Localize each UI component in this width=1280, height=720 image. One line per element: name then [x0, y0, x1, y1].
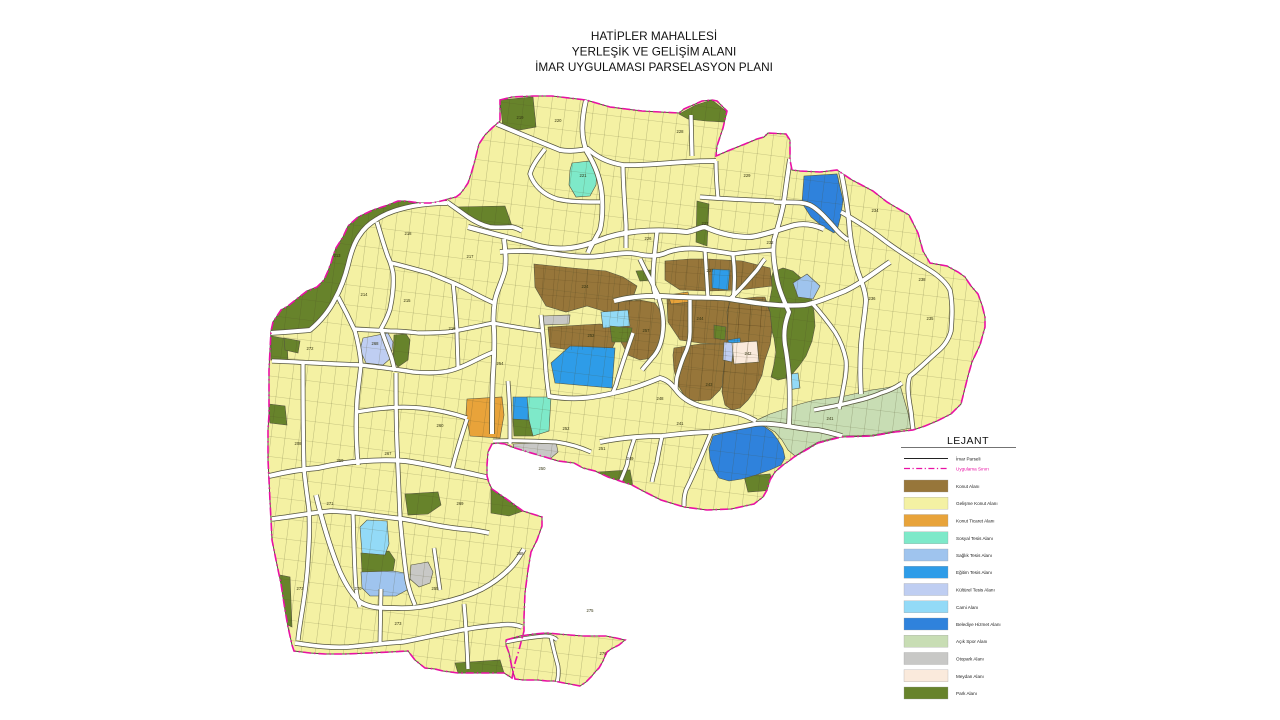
svg-text:276: 276 [600, 651, 608, 656]
svg-text:221: 221 [580, 173, 588, 178]
svg-text:LEJANT: LEJANT [947, 435, 989, 447]
svg-text:Uygulama Sınırı: Uygulama Sınırı [956, 467, 989, 472]
svg-text:249: 249 [627, 456, 635, 461]
svg-text:252: 252 [563, 426, 571, 431]
svg-text:250: 250 [539, 466, 547, 471]
svg-text:Park Alanı: Park Alanı [956, 691, 977, 696]
svg-text:Kültürel Tesis Alanı: Kültürel Tesis Alanı [956, 588, 995, 593]
svg-text:241: 241 [827, 416, 835, 421]
svg-text:273: 273 [395, 621, 403, 626]
svg-text:YERLEŞİK VE GELİŞİM ALANI: YERLEŞİK VE GELİŞİM ALANI [572, 45, 737, 59]
svg-text:217: 217 [467, 254, 475, 259]
svg-text:248: 248 [657, 396, 665, 401]
svg-text:213: 213 [334, 253, 342, 258]
svg-text:227: 227 [702, 221, 710, 226]
svg-text:Konut Ticaret Alanı: Konut Ticaret Alanı [956, 519, 995, 524]
svg-text:242: 242 [745, 351, 753, 356]
svg-text:271: 271 [327, 501, 335, 506]
svg-text:Konut Alanı: Konut Alanı [956, 484, 980, 489]
svg-text:229: 229 [744, 173, 752, 178]
svg-text:Cami Alanı: Cami Alanı [956, 605, 978, 610]
svg-text:244: 244 [697, 316, 705, 321]
svg-text:241: 241 [677, 421, 685, 426]
svg-text:257: 257 [643, 328, 651, 333]
svg-text:İmar Parseli: İmar Parseli [956, 456, 981, 462]
svg-text:Eğitim Tesis Alanı: Eğitim Tesis Alanı [956, 570, 992, 575]
svg-text:267: 267 [385, 451, 393, 456]
svg-text:HATİPLER MAHALLESİ: HATİPLER MAHALLESİ [591, 29, 717, 43]
svg-text:238: 238 [919, 277, 927, 282]
svg-text:269: 269 [457, 501, 465, 506]
svg-text:208: 208 [295, 441, 303, 446]
svg-text:Gelişme Konut Alanı: Gelişme Konut Alanı [956, 501, 998, 506]
svg-text:234: 234 [872, 208, 880, 213]
svg-text:Belediye Hizmet Alanı: Belediye Hizmet Alanı [956, 622, 1001, 627]
svg-text:254: 254 [497, 361, 505, 366]
svg-text:Açık Spor Alanı: Açık Spor Alanı [956, 639, 987, 644]
svg-text:Sosyal Tesis Alanı: Sosyal Tesis Alanı [956, 536, 993, 541]
svg-text:252: 252 [588, 333, 596, 338]
svg-text:237: 237 [707, 268, 715, 273]
svg-text:224: 224 [582, 284, 590, 289]
svg-text:243: 243 [706, 382, 714, 387]
svg-text:218: 218 [405, 231, 413, 236]
svg-text:275: 275 [587, 608, 595, 613]
svg-text:219: 219 [517, 115, 525, 120]
svg-text:273: 273 [297, 586, 305, 591]
svg-text:214: 214 [361, 292, 369, 297]
svg-text:Sağlık Tesis Alanı: Sağlık Tesis Alanı [956, 553, 992, 558]
svg-text:251: 251 [599, 446, 607, 451]
svg-text:216: 216 [449, 326, 457, 331]
svg-text:260: 260 [437, 423, 445, 428]
svg-text:228: 228 [677, 129, 685, 134]
svg-text:259: 259 [337, 458, 345, 463]
svg-text:272: 272 [307, 346, 315, 351]
svg-text:236: 236 [869, 296, 877, 301]
svg-text:İMAR UYGULAMASI PARSELASYON PL: İMAR UYGULAMASI PARSELASYON PLANI [535, 60, 773, 74]
svg-text:235: 235 [927, 316, 935, 321]
svg-text:220: 220 [555, 118, 563, 123]
svg-text:268: 268 [372, 341, 380, 346]
svg-text:268: 268 [517, 551, 525, 556]
svg-text:232: 232 [767, 240, 775, 245]
svg-text:Otopark Alanı: Otopark Alanı [956, 657, 984, 662]
svg-text:270: 270 [355, 586, 363, 591]
svg-text:Meydan Alanı: Meydan Alanı [956, 674, 984, 679]
svg-text:226: 226 [645, 236, 653, 241]
svg-text:255: 255 [432, 586, 440, 591]
svg-text:215: 215 [404, 298, 412, 303]
